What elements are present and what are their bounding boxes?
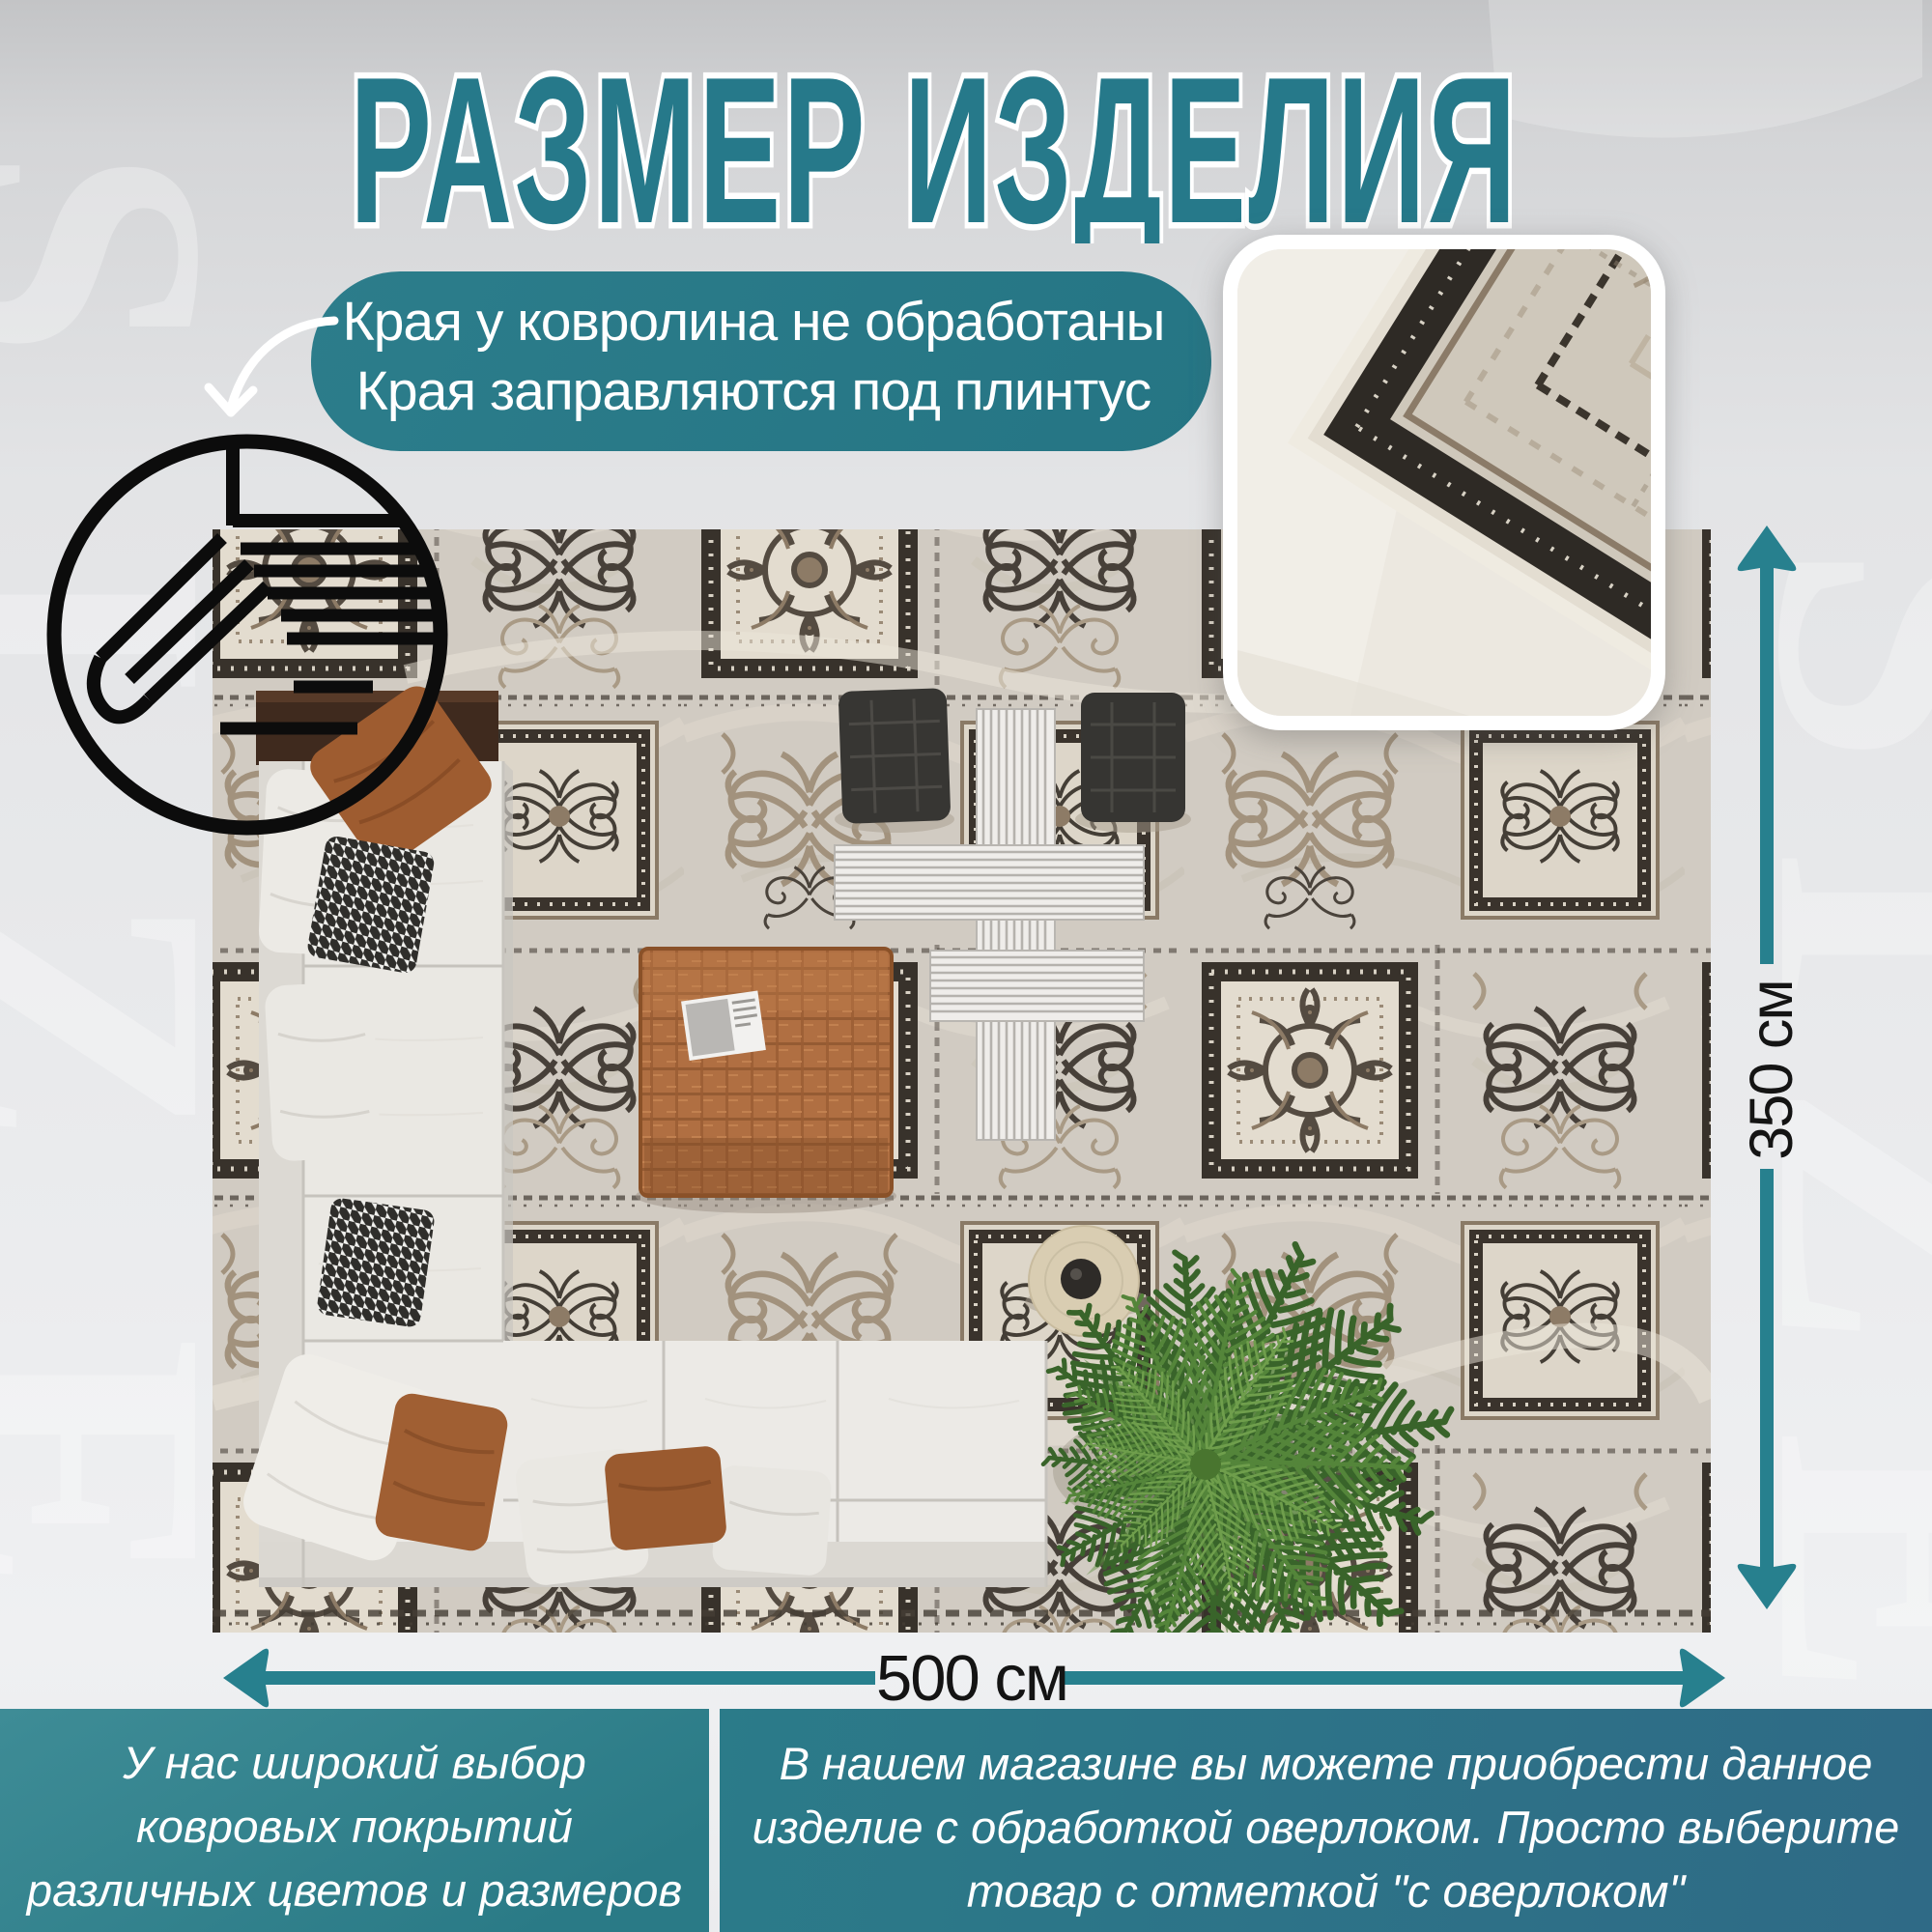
svg-text:500 см: 500 см: [876, 1642, 1067, 1715]
svg-text:350 см: 350 см: [1738, 980, 1805, 1159]
svg-text:РАЗМЕР ИЗДЕЛИЯ: РАЗМЕР ИЗДЕЛИЯ: [350, 33, 1519, 243]
